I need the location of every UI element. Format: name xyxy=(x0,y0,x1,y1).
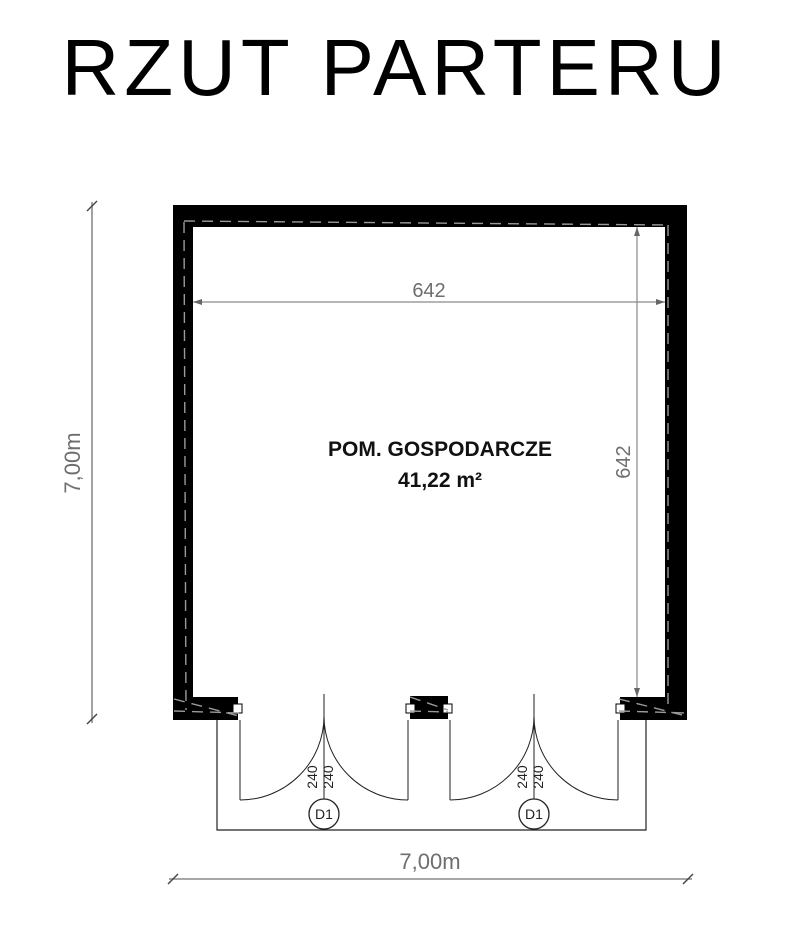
door-1-width-label: 240 xyxy=(304,765,320,789)
wall-bottom-right xyxy=(620,697,687,720)
door-swing-arc xyxy=(324,716,408,800)
inner-height-label: 642 xyxy=(613,445,635,478)
arrowhead-right xyxy=(656,299,665,305)
door-frame-notch xyxy=(233,704,242,713)
arrowhead-down xyxy=(634,688,640,697)
inner-width-label: 642 xyxy=(412,280,445,302)
arrowhead-left xyxy=(193,299,202,305)
door-1-tag: D1 xyxy=(315,806,333,822)
door-2-tag: D1 xyxy=(525,806,543,822)
arrowhead-up xyxy=(634,227,640,236)
outer-height-label: 7,00m xyxy=(60,432,85,493)
porch-outline xyxy=(217,720,646,830)
door-2-height-label: 240 xyxy=(530,765,546,789)
wall-left xyxy=(173,205,193,720)
wall-top xyxy=(173,205,687,227)
page-title: RZUT PARTERU xyxy=(0,22,792,114)
outer-width-label: 7,00m xyxy=(399,849,460,874)
room-name: POM. GOSPODARCZE xyxy=(328,438,552,461)
door-2-width-label: 240 xyxy=(514,765,530,789)
floor-plan-page: RZUT PARTERU xyxy=(0,0,792,926)
room-area: 41,22 m² xyxy=(398,469,482,492)
door-swing-arc xyxy=(534,716,618,800)
wall-bottom-left xyxy=(173,697,238,720)
door-1-height-label: 240 xyxy=(320,765,336,789)
floor-plan-drawing: 642 642 7,00m 7,00m POM. GOSPODARCZE 41,… xyxy=(0,0,792,926)
